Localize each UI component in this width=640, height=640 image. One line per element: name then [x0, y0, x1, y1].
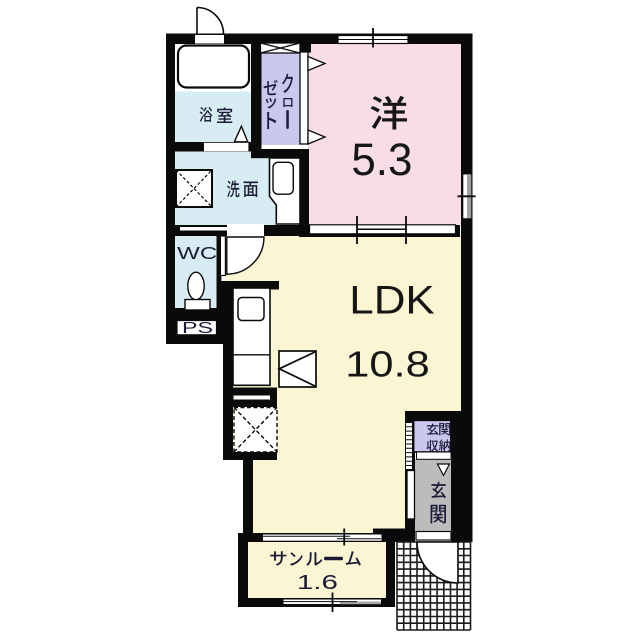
svg-text:1.6: 1.6	[297, 572, 338, 594]
svg-text:LDK: LDK	[349, 279, 435, 323]
svg-text:WC: WC	[177, 243, 217, 263]
svg-text:5.3: 5.3	[351, 134, 412, 185]
svg-text:10.8: 10.8	[345, 343, 430, 384]
svg-text:PS: PS	[182, 320, 213, 337]
